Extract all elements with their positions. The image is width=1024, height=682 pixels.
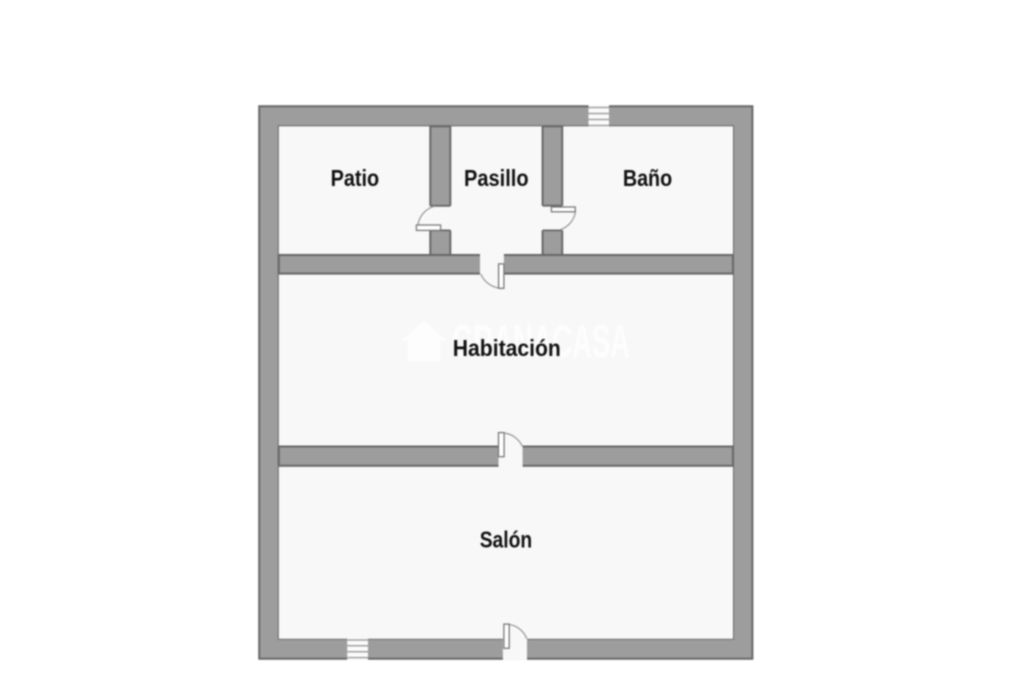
svg-text:Patio: Patio xyxy=(331,164,380,191)
svg-text:Pasillo: Pasillo xyxy=(464,164,529,191)
svg-text:Salón: Salón xyxy=(480,527,532,553)
svg-text:Baño: Baño xyxy=(623,164,672,191)
svg-text:Habitación: Habitación xyxy=(453,335,561,361)
